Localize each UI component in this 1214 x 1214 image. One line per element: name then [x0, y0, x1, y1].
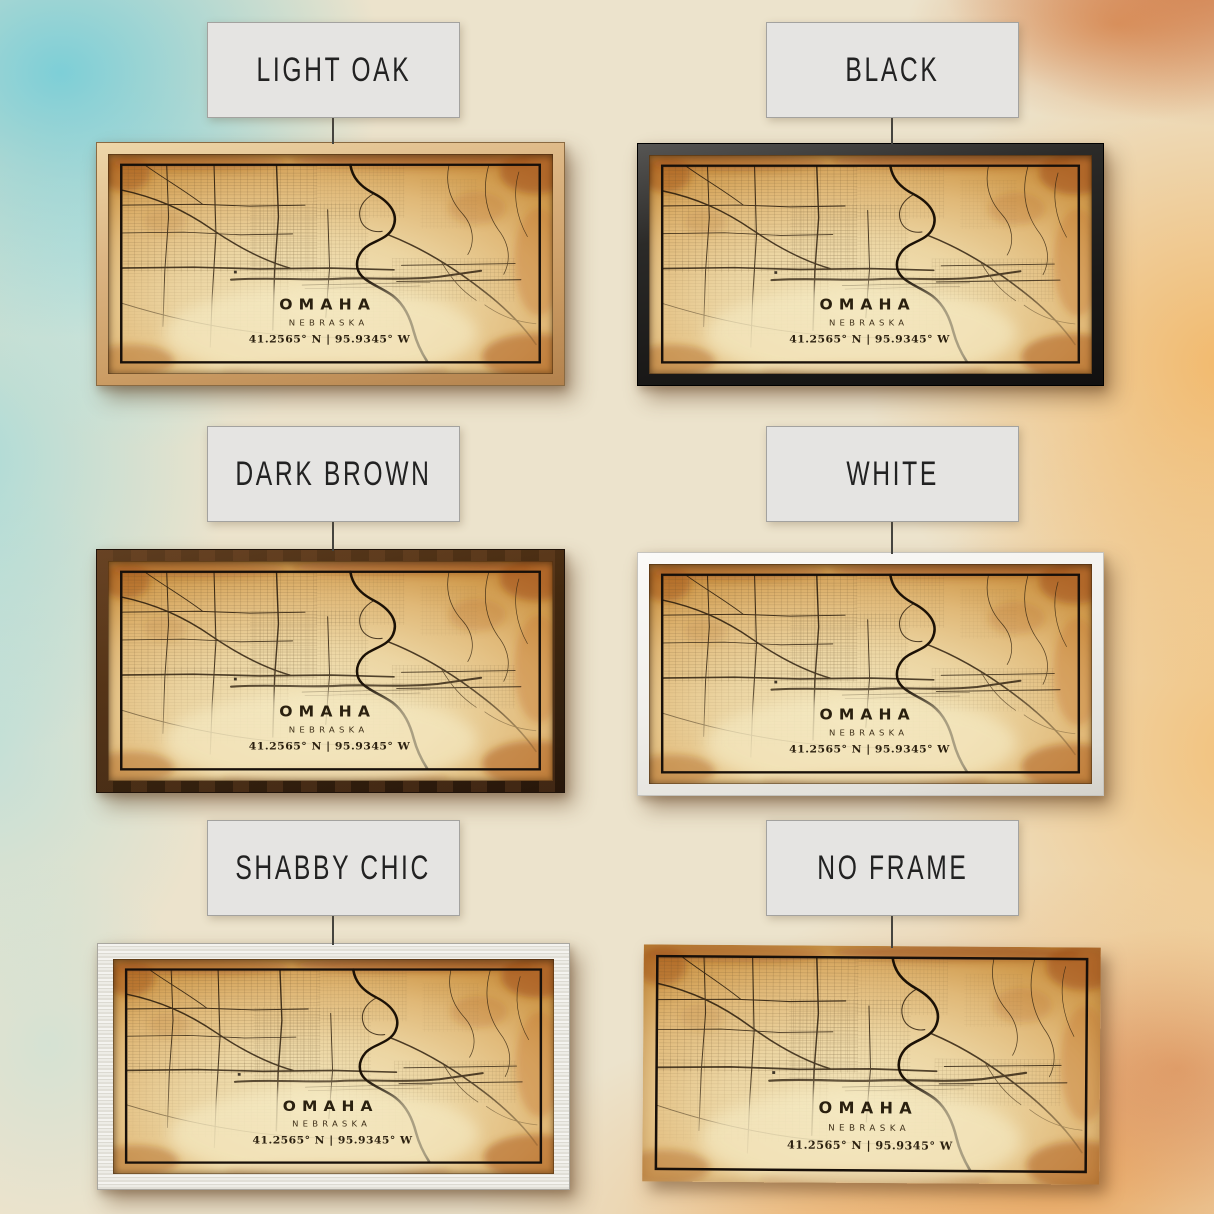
framed-map-light-oak: OMAHA NEBRASKA 41.2565° N | 95.9345° W	[96, 142, 565, 386]
map-state-subtitle: NEBRASKA	[289, 725, 369, 735]
map-print: OMAHA NEBRASKA 41.2565° N | 95.9345° W	[642, 944, 1101, 1184]
connector-line	[891, 117, 893, 144]
framed-map-white: OMAHA NEBRASKA 41.2565° N | 95.9345° W	[637, 552, 1104, 796]
framed-map-dark-brown: OMAHA NEBRASKA 41.2565° N | 95.9345° W	[96, 549, 565, 793]
option-label-text: DARK BROWN	[235, 454, 431, 493]
map-coordinates-text: 41.2565° N | 95.9345° W	[249, 333, 411, 346]
map-print: OMAHA NEBRASKA 41.2565° N | 95.9345° W	[108, 561, 553, 781]
watercolor-background: LIGHT OAK	[0, 0, 1214, 1214]
map-state-subtitle: NEBRASKA	[828, 1123, 910, 1134]
option-label-card-black: BLACK	[766, 22, 1019, 118]
unframed-map-print: OMAHA NEBRASKA 41.2565° N | 95.9345° W	[642, 944, 1101, 1184]
option-label-card-white: WHITE	[766, 426, 1019, 522]
map-state-subtitle: NEBRASKA	[829, 728, 908, 738]
map-city-title: OMAHA	[283, 1097, 379, 1114]
map-city-title: OMAHA	[279, 703, 376, 721]
map-print: OMAHA NEBRASKA 41.2565° N | 95.9345° W	[108, 154, 553, 374]
map-print: OMAHA NEBRASKA 41.2565° N | 95.9345° W	[113, 959, 554, 1174]
connector-line	[891, 521, 893, 554]
vintage-map-graphic: OMAHA NEBRASKA 41.2565° N | 95.9345° W	[649, 155, 1092, 374]
connector-line	[332, 915, 334, 945]
option-label-card-shabby-chic: SHABBY CHIC	[207, 820, 460, 916]
map-city-title: OMAHA	[819, 706, 915, 724]
connector-line	[332, 521, 334, 551]
connector-line	[332, 117, 334, 144]
vintage-map-graphic: OMAHA NEBRASKA 41.2565° N | 95.9345° W	[108, 561, 553, 781]
option-label-text: WHITE	[846, 454, 939, 493]
framed-map-shabby-chic: OMAHA NEBRASKA 41.2565° N | 95.9345° W	[97, 943, 570, 1190]
map-print: OMAHA NEBRASKA 41.2565° N | 95.9345° W	[649, 155, 1092, 374]
map-coordinates-text: 41.2565° N | 95.9345° W	[787, 1139, 953, 1153]
option-label-card-no-frame: NO FRAME	[766, 820, 1019, 916]
vintage-map-graphic: OMAHA NEBRASKA 41.2565° N | 95.9345° W	[108, 154, 553, 374]
framed-map-black: OMAHA NEBRASKA 41.2565° N | 95.9345° W	[637, 143, 1104, 386]
map-print: OMAHA NEBRASKA 41.2565° N | 95.9345° W	[649, 564, 1092, 784]
map-coordinates-text: 41.2565° N | 95.9345° W	[249, 740, 411, 753]
vintage-map-graphic: OMAHA NEBRASKA 41.2565° N | 95.9345° W	[642, 944, 1101, 1184]
option-label-text: SHABBY CHIC	[236, 848, 432, 887]
map-city-title: OMAHA	[819, 296, 915, 314]
connector-line	[891, 915, 893, 948]
option-label-card-light-oak: LIGHT OAK	[207, 22, 460, 118]
map-city-title: OMAHA	[818, 1098, 918, 1118]
map-state-subtitle: NEBRASKA	[292, 1119, 371, 1129]
vintage-map-graphic: OMAHA NEBRASKA 41.2565° N | 95.9345° W	[649, 564, 1092, 784]
option-label-text: NO FRAME	[817, 848, 968, 887]
map-city-title: OMAHA	[279, 296, 376, 314]
map-coordinates-text: 41.2565° N | 95.9345° W	[789, 744, 950, 756]
option-label-text: LIGHT OAK	[256, 50, 411, 89]
option-label-text: BLACK	[845, 50, 939, 89]
map-coordinates-text: 41.2565° N | 95.9345° W	[789, 334, 950, 346]
map-coordinates-text: 41.2565° N | 95.9345° W	[253, 1135, 413, 1147]
option-label-card-dark-brown: DARK BROWN	[207, 426, 460, 522]
map-state-subtitle: NEBRASKA	[289, 318, 369, 328]
vintage-map-graphic: OMAHA NEBRASKA 41.2565° N | 95.9345° W	[113, 959, 554, 1174]
map-state-subtitle: NEBRASKA	[829, 318, 908, 328]
